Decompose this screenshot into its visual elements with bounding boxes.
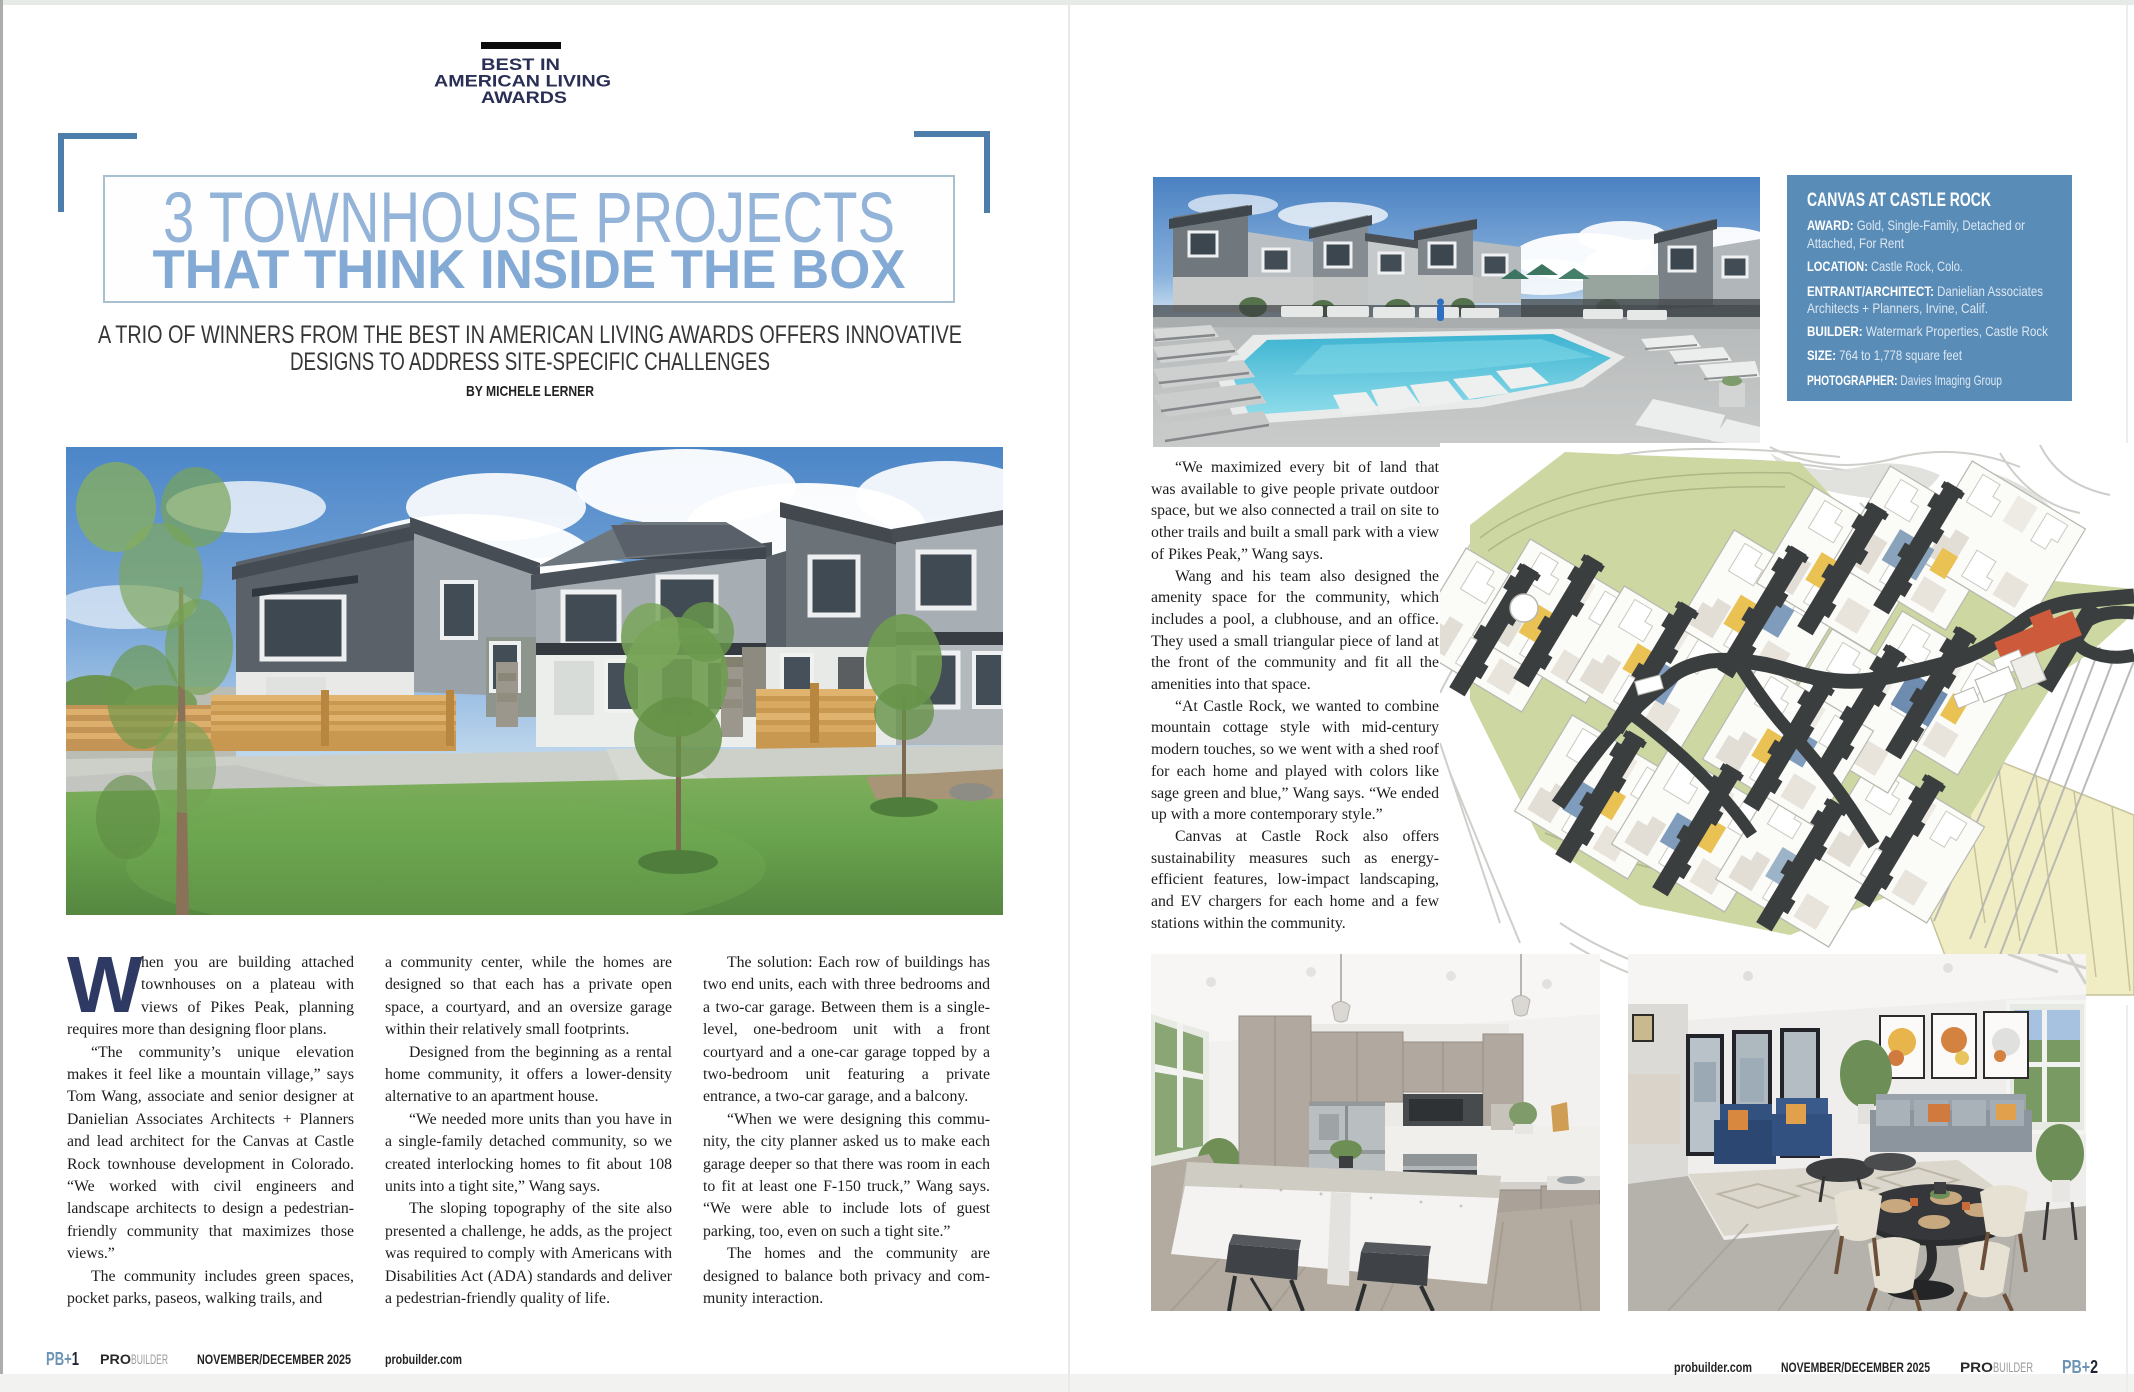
svg-text:AWARDS: AWARDS bbox=[481, 88, 567, 107]
svg-text:BUILDER: BUILDER bbox=[1993, 1359, 2033, 1375]
svg-text:CANVAS AT CASTLE ROCK: CANVAS AT CASTLE ROCK bbox=[1807, 190, 1991, 211]
svg-text:DESIGNS TO ADDRESS SITE-SPECIF: DESIGNS TO ADDRESS SITE-SPECIFIC CHALLEN… bbox=[290, 348, 770, 376]
svg-text:PRO: PRO bbox=[1960, 1359, 1993, 1375]
svg-text:BY MICHELE LERNER: BY MICHELE LERNER bbox=[466, 383, 594, 400]
svg-text:PB+2: PB+2 bbox=[2062, 1357, 2098, 1377]
svg-text:NOVEMBER/DECEMBER 2025: NOVEMBER/DECEMBER 2025 bbox=[197, 1351, 351, 1367]
svg-text:LOCATION: Castle Rock, Colo.: LOCATION: Castle Rock, Colo. bbox=[1807, 258, 1963, 274]
svg-text:BUILDER: BUILDER bbox=[131, 1351, 168, 1367]
svg-text:Attached, For Rent: Attached, For Rent bbox=[1807, 235, 1904, 251]
svg-text:Architects + Planners, Irvine,: Architects + Planners, Irvine, Calif. bbox=[1807, 300, 1988, 316]
svg-text:PRO: PRO bbox=[100, 1351, 131, 1367]
svg-text:THAT THINK INSIDE THE BOX: THAT THINK INSIDE THE BOX bbox=[153, 238, 906, 300]
svg-text:probuilder.com: probuilder.com bbox=[1674, 1359, 1752, 1375]
svg-text:probuilder.com: probuilder.com bbox=[385, 1351, 462, 1367]
svg-text:SIZE: 764 to 1,778 square feet: SIZE: 764 to 1,778 square feet bbox=[1807, 347, 1962, 363]
svg-text:A TRIO OF WINNERS FROM THE BES: A TRIO OF WINNERS FROM THE BEST IN AMERI… bbox=[98, 321, 962, 349]
svg-text:NOVEMBER/DECEMBER 2025: NOVEMBER/DECEMBER 2025 bbox=[1781, 1359, 1930, 1375]
svg-text:BUILDER: Watermark Properties,: BUILDER: Watermark Properties, Castle Ro… bbox=[1807, 323, 2049, 339]
svg-text:PHOTOGRAPHER: Davies Imaging G: PHOTOGRAPHER: Davies Imaging Group bbox=[1807, 372, 2002, 388]
svg-text:AWARD: Gold, Single-Family, De: AWARD: Gold, Single-Family, Detached or bbox=[1807, 217, 2025, 233]
svg-text:PB+1: PB+1 bbox=[46, 1349, 79, 1369]
svg-text:ENTRANT/ARCHITECT: Danielian A: ENTRANT/ARCHITECT: Danielian Associates bbox=[1807, 283, 2043, 299]
